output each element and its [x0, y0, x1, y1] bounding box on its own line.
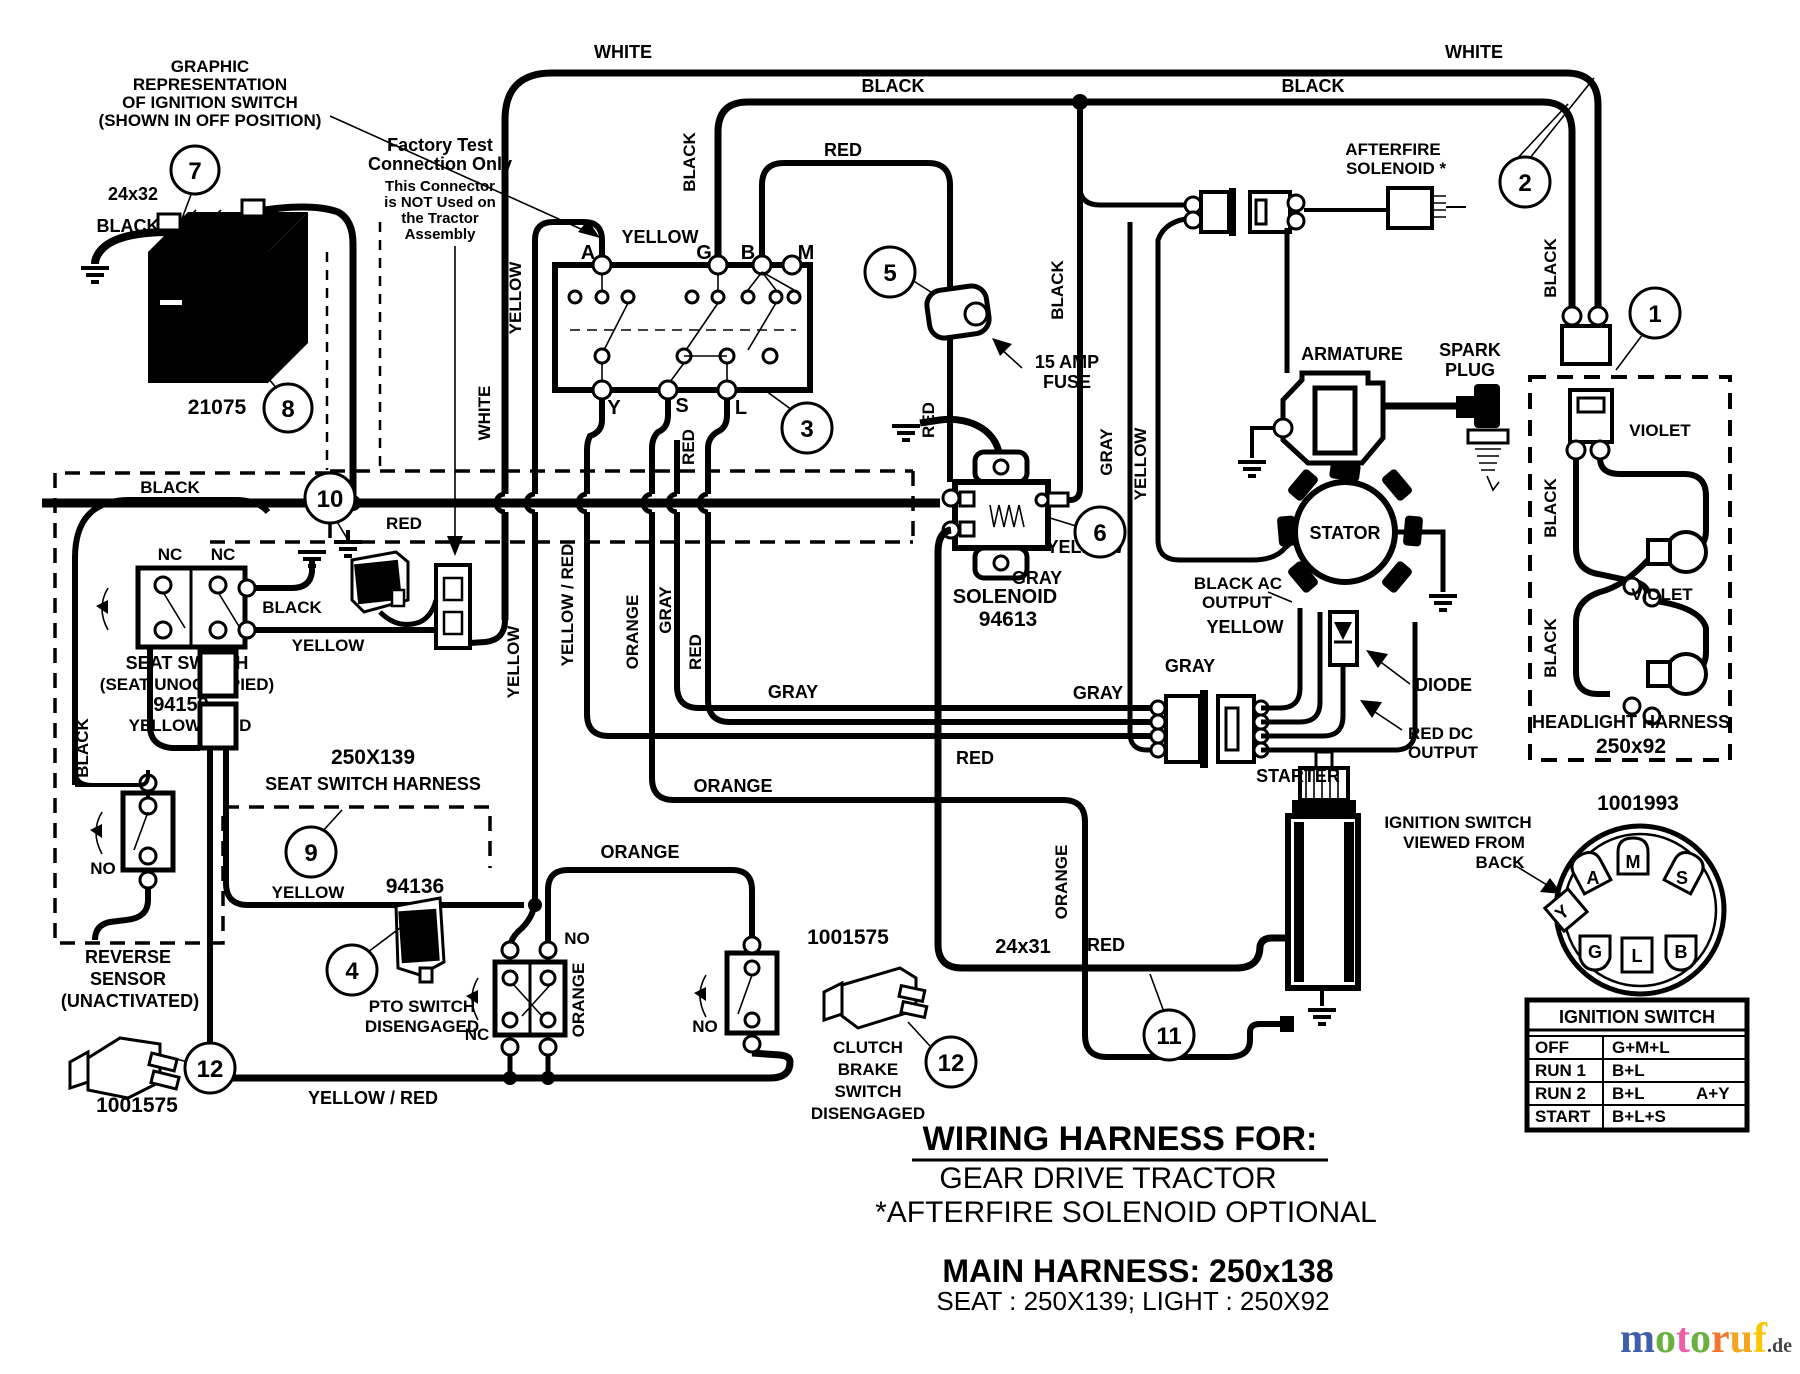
clutch-component	[824, 968, 927, 1028]
wire-yellow-c9	[226, 748, 524, 905]
header-note-l4: (SHOWN IN OFF POSITION)	[99, 111, 322, 130]
ground-armature	[1238, 462, 1266, 476]
factory-note-l4: is NOT Used on	[384, 194, 496, 211]
svg-text:G: G	[1588, 942, 1602, 962]
black-ac-label1: BLACK AC	[1194, 574, 1282, 593]
callout-12b: 12	[938, 1050, 965, 1077]
afterfire-conn1	[1201, 192, 1229, 232]
terminal-b: B	[741, 242, 755, 264]
label-white-tr: WHITE	[1445, 42, 1503, 62]
label-yellow-h2: YELLOW	[1207, 617, 1284, 637]
battery-stripe	[160, 300, 182, 305]
factory-note-l3: This Connector	[385, 178, 495, 195]
pto-no: NO	[564, 929, 590, 948]
factory-note-l6: Assembly	[405, 226, 477, 243]
wire-black-branch	[1068, 102, 1080, 500]
armature-label: ARMATURE	[1301, 344, 1403, 364]
table-r3-mode: RUN 2	[1535, 1084, 1586, 1103]
label-gray-h3: GRAY	[1012, 568, 1062, 588]
seat-harness-part: 250X139	[331, 746, 415, 769]
label-yellow-v3: YELLOW	[1131, 427, 1150, 501]
callout-9: 9	[304, 840, 317, 867]
table-r3-val: B+L	[1612, 1084, 1645, 1103]
headlight-harness-label: HEADLIGHT HARNESS	[1532, 712, 1730, 732]
spark-label2: PLUG	[1445, 360, 1495, 380]
seat-label2: (SEAT UNOCCUPIED)	[100, 675, 274, 694]
svg-text:A: A	[1587, 868, 1600, 888]
headlight-bulb1-base	[1648, 540, 1670, 564]
wire-white-tail	[470, 620, 505, 643]
headlight-harness: VIOLET VIOLET BLACK BLACK HEADLIGHT HARN…	[1532, 307, 1730, 758]
fuse-label2: FUSE	[1043, 372, 1091, 392]
battery-cable-color: BLACK	[97, 216, 160, 236]
bundle-connector-plate	[1200, 690, 1208, 768]
clutch-part: 1001575	[807, 926, 889, 949]
callout-11: 11	[1156, 1023, 1181, 1050]
callout-12a: 12	[197, 1056, 224, 1083]
label-red-top: RED	[824, 140, 862, 160]
wire-armature-ground	[1252, 428, 1274, 458]
terminal-s: S	[675, 395, 688, 417]
diode-label: DIODE	[1415, 675, 1472, 695]
ground-solenoid	[892, 426, 920, 440]
title-line5: SEAT : 250X139; LIGHT : 250X92	[936, 1286, 1329, 1316]
clutch-brake-switch: NO 1001575 CLUTCH BRAKE SWITCH DISENGAGE…	[692, 926, 927, 1123]
ign-back-note2: VIEWED FROM	[1403, 833, 1525, 852]
clutch-label1: CLUTCH	[833, 1038, 903, 1057]
starter-label: STARTER	[1256, 766, 1340, 786]
label-white-tl: WHITE	[594, 42, 652, 62]
ignition-back-view: M A S Y G L B 1001993 IGNITION SWITCH VI…	[1384, 792, 1724, 994]
label-orange-h1: ORANGE	[693, 776, 772, 796]
violet2-label: VIOLET	[1631, 585, 1693, 604]
label-black-v1: BLACK	[1048, 260, 1067, 320]
wire-gray	[677, 440, 1155, 708]
table-r3-extra: A+Y	[1696, 1084, 1730, 1103]
red-dc-label2: OUTPUT	[1408, 743, 1479, 762]
ign-back-note1: IGNITION SWITCH	[1384, 813, 1531, 832]
relay-area: RED	[334, 514, 436, 624]
label-yellow-v2: YELLOW	[504, 625, 523, 699]
headlight-harness-part: 250x92	[1596, 735, 1666, 758]
label-black-seat: BLACK	[262, 598, 322, 617]
label-yellow-seat: YELLOW	[292, 636, 366, 655]
title-line1: WIRING HARNESS FOR:	[923, 1120, 1318, 1158]
label-white-v: WHITE	[475, 386, 494, 441]
junction-yellow	[528, 898, 542, 912]
ground-stator	[1429, 596, 1457, 610]
spark-cap	[1474, 384, 1500, 428]
reverse-part: 1001575	[96, 1094, 178, 1117]
callout-3: 3	[800, 416, 813, 443]
starter-terminal	[1280, 1016, 1294, 1032]
starter-cable-size: 24x31	[995, 936, 1051, 958]
pto-label2: DISENGAGED	[365, 1017, 479, 1036]
fuse-pointer-arrow	[992, 338, 1012, 356]
wire-afterfire-feed	[1080, 190, 1185, 205]
label-yellow-v1: YELLOW	[506, 261, 525, 335]
stator-label: STATOR	[1310, 523, 1381, 543]
headlight-bulb2-base	[1648, 662, 1670, 686]
black-ac-label2: OUTPUT	[1202, 593, 1273, 612]
wire-yellowred	[587, 390, 1155, 736]
factory-note-l2: Connection Only	[368, 154, 512, 174]
wiring-diagram: BATTERY 24x32 BLACK 21075 GRAPHIC REPRES…	[0, 0, 1800, 1374]
terminal-a: A	[581, 242, 595, 264]
reverse-no: NO	[90, 859, 116, 878]
svg-text:M: M	[1626, 852, 1641, 872]
label-yellow-sw: YELLOW	[622, 227, 699, 247]
table-title: IGNITION SWITCH	[1559, 1007, 1715, 1027]
label-yr-v: YELLOW / RED	[558, 544, 577, 667]
wiring-diagram-page: BATTERY 24x32 BLACK 21075 GRAPHIC REPRES…	[0, 0, 1800, 1374]
pto-switch: NC NO 94136 PTO SWITCH DISENGAGED	[365, 870, 752, 1078]
seat-connector1	[200, 652, 236, 696]
label-yr-bottom: YELLOW / RED	[308, 1088, 438, 1108]
spark-threads	[1475, 449, 1501, 470]
seat-harness-name: SEAT SWITCH HARNESS	[265, 774, 481, 794]
table-r4-mode: START	[1535, 1107, 1591, 1126]
reverse-label3: (UNACTIVATED)	[61, 991, 199, 1011]
afterfire-body	[1388, 188, 1432, 228]
label-black-arc: BLACK	[140, 478, 200, 497]
label-red-v2: RED	[679, 429, 698, 465]
callout-8: 8	[281, 396, 294, 423]
clutch-label2: BRAKE	[838, 1060, 898, 1079]
label-red-c10: RED	[386, 514, 422, 533]
ign-back-part: 1001993	[1597, 792, 1679, 815]
seat-nc2: NC	[211, 545, 236, 564]
callout-5: 5	[883, 260, 896, 287]
label-orange-v3: ORANGE	[569, 963, 588, 1038]
label-gray-h4: GRAY	[1165, 656, 1215, 676]
starter-cable-color: RED	[1087, 935, 1125, 955]
label-gray-h2: GRAY	[1073, 683, 1123, 703]
label-yellow-c9: YELLOW	[272, 883, 346, 902]
seat-nc1: NC	[158, 545, 183, 564]
clutch-no: NO	[692, 1017, 718, 1036]
factory-note-l1: Factory Test	[387, 135, 493, 155]
svg-text:B: B	[1675, 942, 1688, 962]
label-gray-v2: GRAY	[1097, 428, 1116, 476]
table-r2-val: B+L	[1612, 1061, 1645, 1080]
afterfire-solenoid: AFTERFIRE SOLENOID *	[1080, 140, 1466, 236]
terminal-l: L	[735, 397, 747, 419]
spark-tip	[1487, 476, 1499, 490]
label-red-h1: RED	[956, 748, 994, 768]
solenoid-label: SOLENOID	[953, 586, 1057, 608]
hl-black1-label: BLACK	[1541, 478, 1560, 538]
callout-1: 1	[1648, 301, 1661, 328]
callout-2: 2	[1518, 170, 1531, 197]
armature-core	[1315, 388, 1355, 453]
label-red-v3: RED	[686, 634, 705, 670]
title-line3: *AFTERFIRE SOLENOID OPTIONAL	[875, 1196, 1377, 1229]
factory-note-l5: the Tractor	[401, 210, 479, 227]
ign-back-note3: BACK	[1475, 853, 1525, 872]
label-black-t1: BLACK	[862, 76, 925, 96]
label-black-right: BLACK	[1541, 238, 1560, 298]
red-dc-label1: RED DC	[1408, 724, 1473, 743]
wire-afterfire-down2	[1158, 218, 1294, 560]
battery-terminal-pos	[242, 200, 264, 216]
callout-4: 4	[345, 958, 359, 985]
title-block: WIRING HARNESS FOR: GEAR DRIVE TRACTOR *…	[875, 1120, 1377, 1316]
seat-connector2	[200, 704, 236, 748]
callout-10: 10	[317, 486, 344, 513]
terminal-y: Y	[607, 397, 621, 419]
solenoid-pin	[1048, 493, 1068, 506]
title-line2: GEAR DRIVE TRACTOR	[939, 1162, 1276, 1195]
pto-label1: PTO SWITCH	[369, 997, 475, 1016]
callout-6: 6	[1093, 520, 1106, 547]
factory-connector-pin1	[444, 578, 462, 600]
table-r1-mode: OFF	[1535, 1038, 1569, 1057]
watermark[interactable]: motoruf.de	[1620, 1316, 1792, 1362]
battery-part: 21075	[188, 396, 247, 419]
label-black-left: BLACK	[73, 718, 92, 778]
afterfire-label1: AFTERFIRE	[1345, 140, 1440, 159]
reverse-component	[70, 1038, 179, 1098]
table-r4-val: B+L+S	[1612, 1107, 1666, 1126]
terminal-g: G	[696, 242, 712, 264]
label-red-v1: RED	[919, 402, 938, 438]
hl-black2-label: BLACK	[1541, 618, 1560, 678]
headlight-plug-top	[1562, 326, 1610, 364]
afterfire-label2: SOLENOID *	[1346, 159, 1447, 178]
callout-7: 7	[188, 158, 201, 185]
label-gray-v1: GRAY	[656, 586, 675, 634]
header-note-l3: OF IGNITION SWITCH	[122, 93, 298, 112]
relay-component	[352, 552, 408, 612]
pto-part: 94136	[386, 875, 444, 898]
label-gray-h1: GRAY	[768, 682, 818, 702]
label-orange-h2: ORANGE	[600, 842, 679, 862]
ignition-switch-graphic: A G B M Y S L	[555, 242, 814, 419]
battery-cable-size: 24x32	[108, 184, 158, 204]
bundle-connector-a	[1166, 696, 1200, 762]
fuse-label1: 15 AMP	[1035, 352, 1099, 372]
table-r1-val: G+M+L	[1612, 1038, 1670, 1057]
solenoid: SOLENOID 94613	[892, 419, 1068, 631]
fuse-window	[965, 303, 987, 325]
header-note-l2: REPRESENTATION	[133, 75, 287, 94]
bundle-connector-slot	[1226, 708, 1238, 750]
pto-component	[396, 898, 444, 982]
motoruf-logo[interactable]: motoruf.de	[1620, 1316, 1792, 1362]
battery-front	[148, 252, 268, 383]
engine: ARMATURE SPARK PLUG STATOR DIODE BLACK A…	[1194, 228, 1508, 762]
ground-battery	[81, 268, 109, 282]
label-orange-v2: ORANGE	[1052, 845, 1071, 920]
label-orange-v1: ORANGE	[623, 595, 642, 670]
spark-label1: SPARK	[1439, 340, 1501, 360]
reverse-sensor: NO REVERSE SENSOR (UNACTIVATED) 1001575	[61, 770, 199, 1117]
wire-reverse-bottom	[95, 888, 148, 940]
battery-terminal-neg	[158, 214, 180, 230]
label-black-g: BLACK	[680, 132, 699, 192]
violet1-label: VIOLET	[1629, 421, 1691, 440]
svg-text:S: S	[1676, 868, 1688, 888]
reverse-label1: REVERSE	[85, 947, 171, 967]
ground-starter	[1308, 1010, 1336, 1024]
terminal-m: M	[798, 242, 815, 264]
clutch-label3: SWITCH	[834, 1082, 901, 1101]
factory-pointer-arrow	[447, 536, 463, 556]
title-line4: MAIN HARNESS: 250x138	[942, 1253, 1333, 1289]
wire-seat-black	[255, 560, 312, 588]
label-black-t2: BLACK	[1282, 76, 1345, 96]
clutch-label4: DISENGAGED	[811, 1104, 925, 1123]
svg-text:L: L	[1632, 946, 1643, 966]
reverse-label2: SENSOR	[90, 969, 166, 989]
table-r2-mode: RUN 1	[1535, 1061, 1586, 1080]
ground-relay	[334, 542, 362, 556]
battery: BATTERY 24x32 BLACK 21075	[81, 184, 309, 419]
spark-hex	[1468, 430, 1508, 443]
solenoid-part: 94613	[979, 608, 1037, 631]
header-note-l1: GRAPHIC	[171, 57, 249, 76]
header-note: GRAPHIC REPRESENTATION OF IGNITION SWITC…	[99, 57, 600, 238]
factory-connector-pin2	[444, 612, 462, 634]
afterfire-ribs	[1432, 196, 1446, 217]
ignition-table: IGNITION SWITCH OFF G+M+L RUN 1 B+L RUN …	[1527, 1000, 1747, 1130]
